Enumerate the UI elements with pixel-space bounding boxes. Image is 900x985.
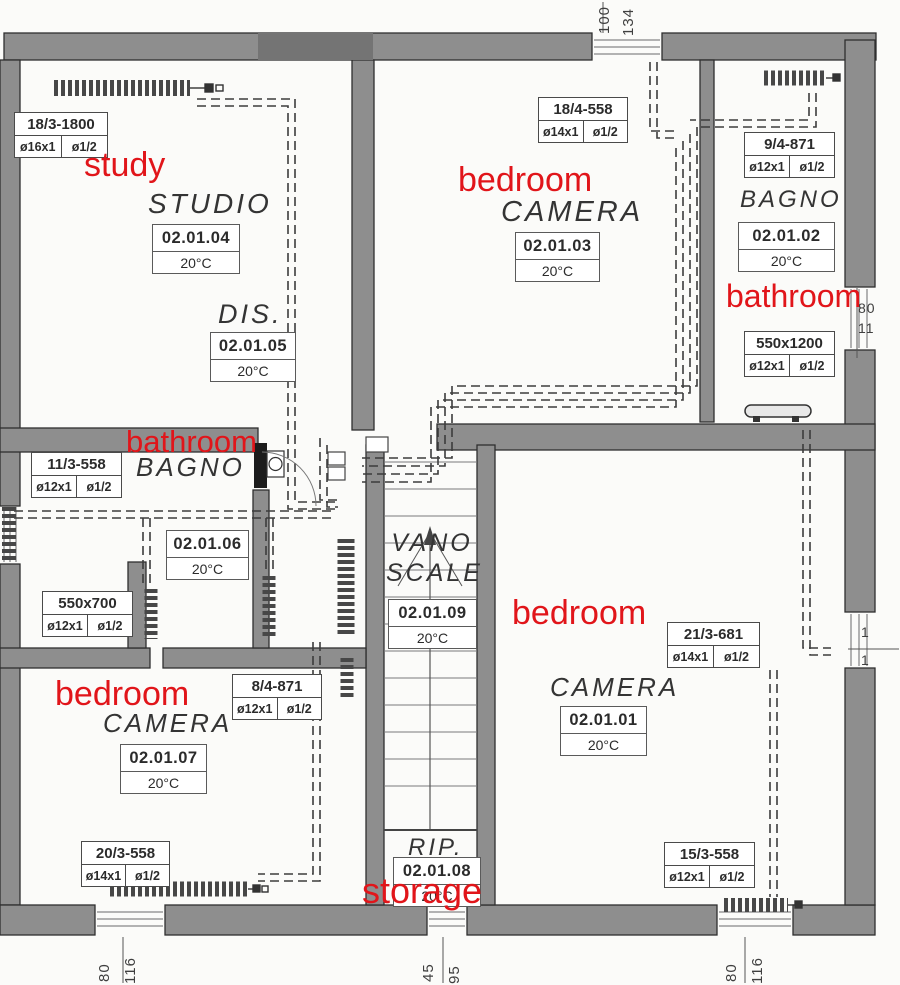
room-id-box-bedroom-top: 02.01.03 20°C bbox=[515, 232, 600, 282]
dimension-label: 116 bbox=[749, 957, 766, 984]
dimension-label: 45 bbox=[420, 963, 437, 982]
dimension-label: 1 bbox=[861, 652, 870, 668]
towel-radiator bbox=[745, 405, 811, 422]
room-temp: 20°C bbox=[739, 250, 834, 271]
room-code: 02.01.02 bbox=[739, 223, 834, 250]
dimension-label: 80 bbox=[723, 963, 740, 982]
radiator-pipe-size: ø12x1 bbox=[32, 476, 77, 497]
radiator-model: 11/3-558 bbox=[32, 453, 121, 476]
radiator-spec-box: 550x700 ø12x1ø1/2 bbox=[42, 591, 133, 637]
radiator-spec-box: 15/3-558 ø12x1ø1/2 bbox=[664, 842, 755, 888]
radiator-spec-box: 20/3-558 ø14x1ø1/2 bbox=[81, 841, 170, 887]
radiator-conn-size: ø1/2 bbox=[77, 476, 121, 497]
room-id-box-hallway: 02.01.05 20°C bbox=[210, 332, 296, 382]
radiator-conn-size: ø1/2 bbox=[710, 866, 754, 887]
annotation-storage: storage bbox=[362, 870, 482, 912]
room-code: 02.01.04 bbox=[153, 225, 239, 252]
room-code: 02.01.03 bbox=[516, 233, 599, 260]
dimension-label: 11 bbox=[858, 320, 875, 336]
dimension-label: 80 bbox=[96, 963, 113, 982]
radiator-spec-box: 9/4-871 ø12x1ø1/2 bbox=[744, 132, 835, 178]
annotation-bathroom-top-right: bathroom bbox=[726, 278, 861, 315]
radiator-pipe-size: ø12x1 bbox=[745, 156, 790, 177]
room-code: 02.01.07 bbox=[121, 745, 206, 772]
room-temp: 20°C bbox=[211, 360, 295, 381]
room-temp: 20°C bbox=[167, 558, 248, 579]
annotation-bedroom-right: bedroom bbox=[512, 594, 646, 633]
room-id-box-bathroom-left: 02.01.06 20°C bbox=[166, 530, 249, 580]
room-temp: 20°C bbox=[561, 734, 646, 755]
room-name-camera-right: CAMERA bbox=[550, 672, 679, 703]
radiator-conn-size: ø1/2 bbox=[584, 121, 628, 142]
radiator-pipe-size: ø16x1 bbox=[15, 136, 62, 157]
dimension-label: 95 bbox=[446, 965, 463, 984]
room-name-camera-top: CAMERA bbox=[501, 196, 643, 229]
floor-plan: 18/3-1800 ø16x1ø1/2 18/4-558 ø14x1ø1/2 9… bbox=[0, 0, 900, 985]
room-id-box-stairwell: 02.01.09 20°C bbox=[388, 599, 477, 649]
dimension-label: 1 bbox=[861, 624, 870, 640]
radiator-model: 18/4-558 bbox=[539, 98, 627, 121]
radiator-model: 550x700 bbox=[43, 592, 132, 615]
radiator-spec-box: 11/3-558 ø12x1ø1/2 bbox=[31, 452, 122, 498]
radiator-pipe-size: ø14x1 bbox=[668, 646, 714, 667]
radiator-spec-box: 8/4-871 ø12x1ø1/2 bbox=[232, 674, 322, 720]
room-name-dis: DIS. bbox=[218, 299, 283, 330]
room-id-box-bedroom-bottom-left: 02.01.07 20°C bbox=[120, 744, 207, 794]
room-temp: 20°C bbox=[389, 627, 476, 648]
radiator-conn-size: ø1/2 bbox=[88, 615, 132, 636]
room-name-bagno-top-right: BAGNO bbox=[740, 186, 842, 214]
radiator-model: 21/3-681 bbox=[668, 623, 759, 646]
room-temp: 20°C bbox=[121, 772, 206, 793]
dimension-label: 100 bbox=[596, 6, 613, 34]
annotation-study: study bbox=[84, 146, 165, 185]
radiator-model: 18/3-1800 bbox=[15, 113, 107, 136]
radiator-conn-size: ø1/2 bbox=[278, 698, 322, 719]
radiator-pipe-size: ø12x1 bbox=[233, 698, 278, 719]
radiator-model: 550x1200 bbox=[745, 332, 834, 355]
room-code: 02.01.05 bbox=[211, 333, 295, 360]
radiator-conn-size: ø1/2 bbox=[790, 355, 834, 376]
boiler-unit bbox=[254, 443, 284, 488]
room-name-studio: STUDIO bbox=[148, 188, 272, 220]
radiator-pipe-size: ø12x1 bbox=[745, 355, 790, 376]
radiator-conn-size: ø1/2 bbox=[714, 646, 759, 667]
radiator-pipe-size: ø12x1 bbox=[665, 866, 710, 887]
room-temp: 20°C bbox=[516, 260, 599, 281]
annotation-bathroom-left: bathroom bbox=[126, 424, 257, 460]
radiator-conn-size: ø1/2 bbox=[126, 865, 169, 886]
radiator-pipe-size: ø14x1 bbox=[539, 121, 584, 142]
radiator-model: 8/4-871 bbox=[233, 675, 321, 698]
room-code: 02.01.01 bbox=[561, 707, 646, 734]
radiator-spec-box: 18/4-558 ø14x1ø1/2 bbox=[538, 97, 628, 143]
radiator-spec-box: 550x1200 ø12x1ø1/2 bbox=[744, 331, 835, 377]
dimension-label: 134 bbox=[620, 8, 637, 36]
room-id-box-bedroom-right: 02.01.01 20°C bbox=[560, 706, 647, 756]
radiator-model: 9/4-871 bbox=[745, 133, 834, 156]
room-name-vano-scale: VANO SCALE bbox=[386, 528, 478, 588]
dimension-label: 116 bbox=[122, 957, 139, 984]
radiator-conn-size: ø1/2 bbox=[790, 156, 834, 177]
room-name-rip: RIP. bbox=[408, 834, 464, 862]
radiator-model: 15/3-558 bbox=[665, 843, 754, 866]
room-code: 02.01.09 bbox=[389, 600, 476, 627]
radiator-pipe-size: ø12x1 bbox=[43, 615, 88, 636]
annotation-bedroom-top: bedroom bbox=[458, 161, 592, 200]
radiator-spec-box: 21/3-681 ø14x1ø1/2 bbox=[667, 622, 760, 668]
room-id-box-bathroom-top-right: 02.01.02 20°C bbox=[738, 222, 835, 272]
room-temp: 20°C bbox=[153, 252, 239, 273]
room-id-box-study: 02.01.04 20°C bbox=[152, 224, 240, 274]
room-code: 02.01.06 bbox=[167, 531, 248, 558]
annotation-bedroom-bottom-left: bedroom bbox=[55, 675, 189, 714]
radiator-model: 20/3-558 bbox=[82, 842, 169, 865]
radiator-pipe-size: ø14x1 bbox=[82, 865, 126, 886]
